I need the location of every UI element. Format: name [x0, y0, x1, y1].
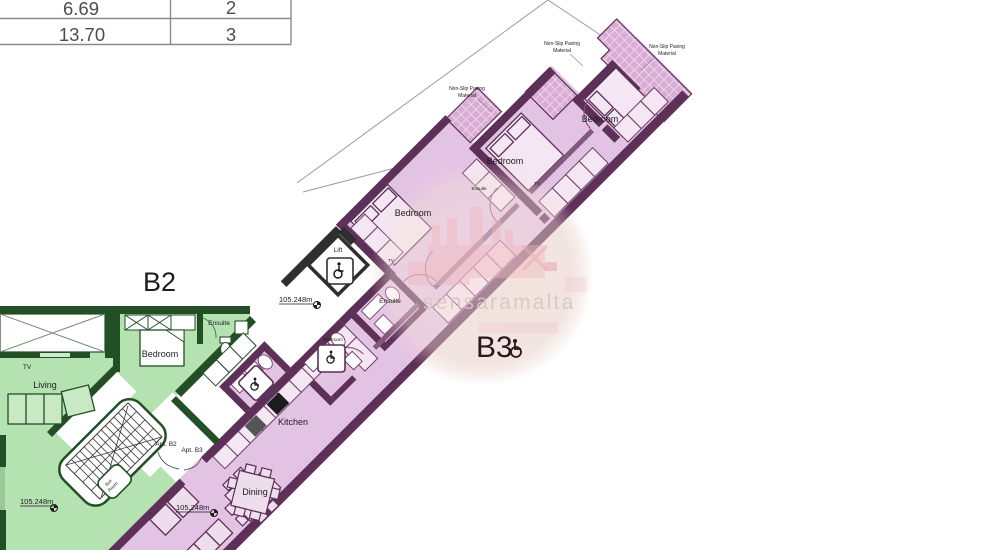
svg-text:sensaramalta: sensaramalta	[423, 291, 575, 314]
svg-text:Bedroom: Bedroom	[395, 208, 432, 218]
svg-text:Bedroom: Bedroom	[487, 156, 524, 166]
svg-text:Kitchen: Kitchen	[278, 417, 308, 427]
svg-text:B3: B3	[476, 331, 513, 364]
svg-text:105.248m: 105.248m	[20, 497, 53, 506]
svg-text:Material: Material	[553, 48, 571, 54]
svg-text:Ensuite: Ensuite	[471, 186, 487, 191]
svg-text:Ensuite: Ensuite	[208, 320, 230, 327]
svg-text:Non-Slip Paving: Non-Slip Paving	[544, 41, 580, 47]
svg-text:6.69: 6.69	[63, 0, 99, 19]
svg-text:2: 2	[226, 0, 236, 18]
svg-text:TV: TV	[534, 181, 540, 186]
svg-text:Ensuite: Ensuite	[379, 298, 401, 305]
svg-text:3: 3	[226, 24, 236, 45]
svg-text:Bathroom: Bathroom	[323, 337, 343, 342]
svg-text:13.70: 13.70	[59, 24, 105, 45]
svg-text:Bedroom: Bedroom	[582, 114, 619, 124]
svg-text:Material: Material	[658, 51, 676, 57]
svg-text:Dining: Dining	[242, 487, 268, 497]
svg-text:Apt. B2: Apt. B2	[155, 441, 177, 448]
svg-text:TV: TV	[23, 364, 32, 371]
svg-text:105.248m: 105.248m	[279, 295, 312, 304]
svg-text:Non-Slip Paving: Non-Slip Paving	[449, 86, 485, 92]
svg-text:Material: Material	[458, 93, 476, 99]
svg-text:B2: B2	[143, 267, 176, 297]
svg-text:Non-Slip Paving: Non-Slip Paving	[649, 44, 685, 50]
svg-text:Living: Living	[33, 380, 57, 390]
svg-text:Apt. B3: Apt. B3	[181, 447, 203, 454]
svg-text:Lift: Lift	[334, 247, 343, 254]
svg-text:105.248m: 105.248m	[176, 503, 209, 512]
svg-text:Bedroom: Bedroom	[142, 349, 179, 359]
svg-text:TV: TV	[388, 258, 394, 263]
